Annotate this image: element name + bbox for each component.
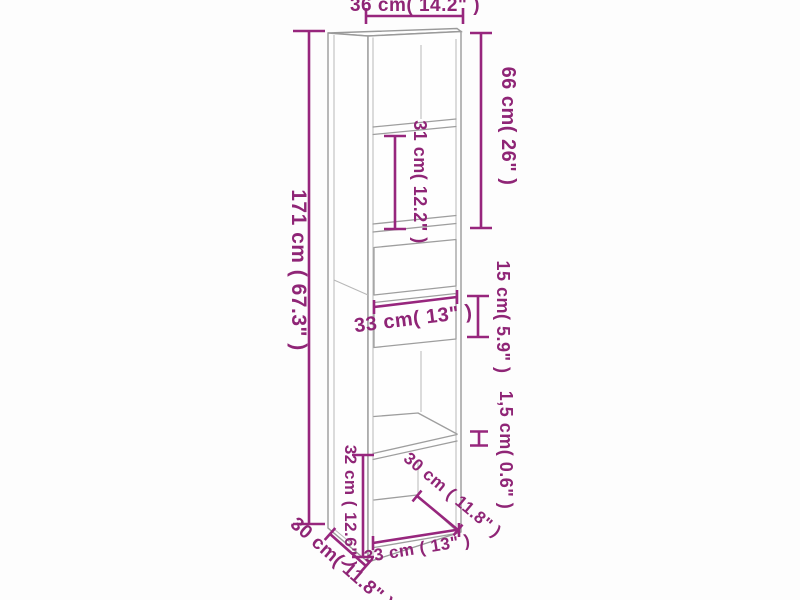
dimension-diagram: 36 cm( 14.2" ) 171 cm ( 67.3" ) 66 cm( 2… [0, 0, 800, 600]
dimension-label-panel-thickness: 1,5 cm( 0.6" ) [496, 391, 516, 510]
dimension-total-height: 171 cm ( 67.3" ) [287, 31, 325, 524]
dimension-label-drawer-front-height: 15 cm( 5.9" ) [493, 260, 513, 373]
dimension-label-total-height: 171 cm ( 67.3" ) [287, 189, 310, 351]
dimension-line [470, 432, 488, 446]
dimension-label-top-width: 36 cm( 14.2" ) [350, 0, 480, 16]
dimension-label-upper-section: 66 cm( 26" ) [497, 67, 519, 186]
dimension-upper-section: 66 cm( 26" ) [470, 33, 519, 228]
dimension-label-bottom-compartment: 32 cm ( 12.6" ) [341, 445, 360, 567]
dimension-line [470, 33, 492, 228]
screenshot-canvas: 36 cm( 14.2" ) 171 cm ( 67.3" ) 66 cm( 2… [0, 0, 800, 600]
dimension-top-width: 36 cm( 14.2" ) [350, 0, 480, 24]
dimension-panel-thickness: 1,5 cm( 0.6" ) [470, 391, 516, 510]
dimension-drawer-front-height: 15 cm( 5.9" ) [467, 260, 513, 373]
dimension-label-shelf-space: 31 cm( 12.2" ) [410, 120, 430, 244]
